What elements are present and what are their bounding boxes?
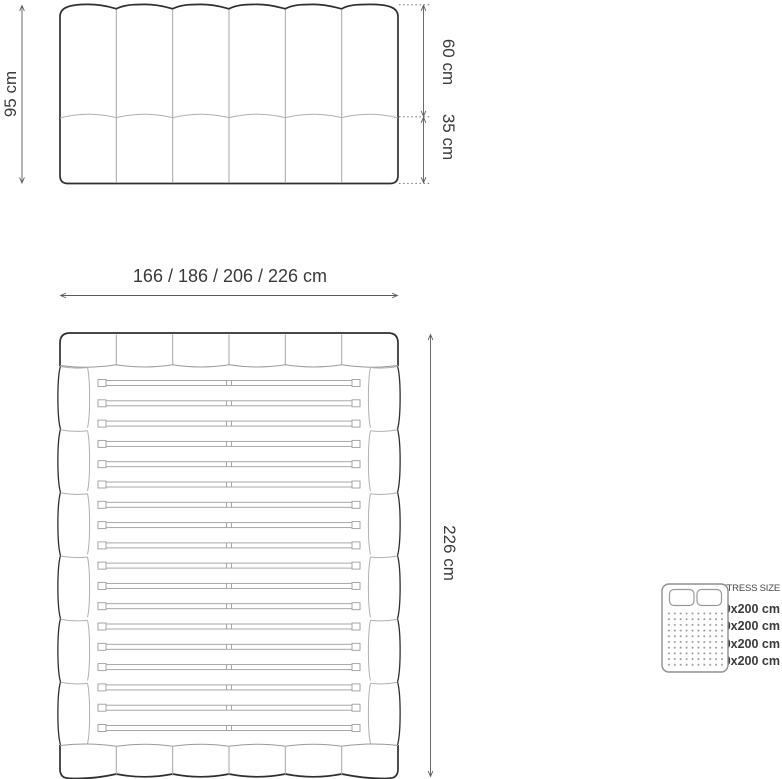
top-view-bed (58, 333, 400, 778)
mattress-size-legend: MATTRESS SIZE 166 cm: 140x200 cm 186 cm:… (661, 583, 780, 670)
right-side-rail (368, 366, 400, 745)
front-view-headboard (60, 4, 398, 183)
front-lower-section-label: 35 cm (438, 107, 458, 167)
width-dimension-line (61, 293, 398, 298)
bed-width-options-label: 166 / 186 / 206 / 226 cm (110, 266, 350, 287)
front-height-label: 95 cm (1, 64, 21, 124)
left-side-rail (58, 366, 90, 745)
length-dimension-line (428, 335, 433, 777)
bed-slats (98, 380, 360, 732)
bed-length-label: 226 cm (439, 518, 459, 588)
bed-dimension-diagram: 95 cm 60 cm 35 cm 166 / 186 / 206 / 226 … (0, 0, 782, 779)
mattress-icon (661, 583, 729, 673)
front-upper-section-label: 60 cm (438, 32, 458, 92)
